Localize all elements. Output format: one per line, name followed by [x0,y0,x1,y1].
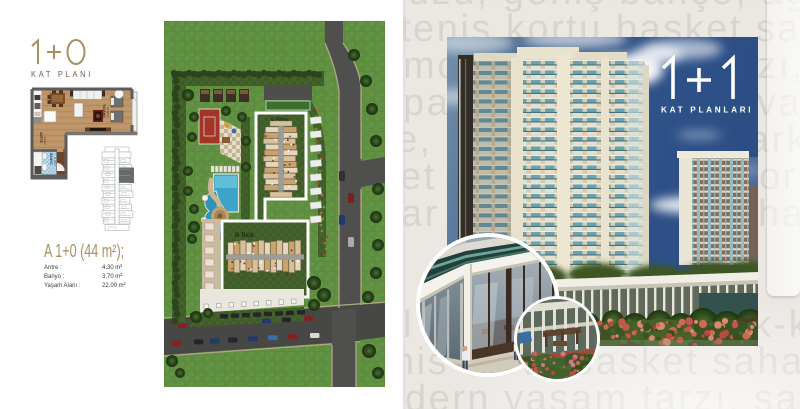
svg-text:3.70m²: 3.70m² [53,157,57,166]
svg-text:ANTRE: ANTRE [39,132,43,143]
svg-text:YAŞAMA: YAŞAMA [102,104,106,118]
svg-text:4.30m²: 4.30m² [43,136,47,145]
svg-text:KAT PLANLARI: KAT PLANLARI [661,106,753,115]
svg-text:B Blok: B Blok [235,232,255,239]
svg-text:22.00m²: 22.00m² [106,107,110,117]
svg-text:BANYO: BANYO [49,153,53,165]
